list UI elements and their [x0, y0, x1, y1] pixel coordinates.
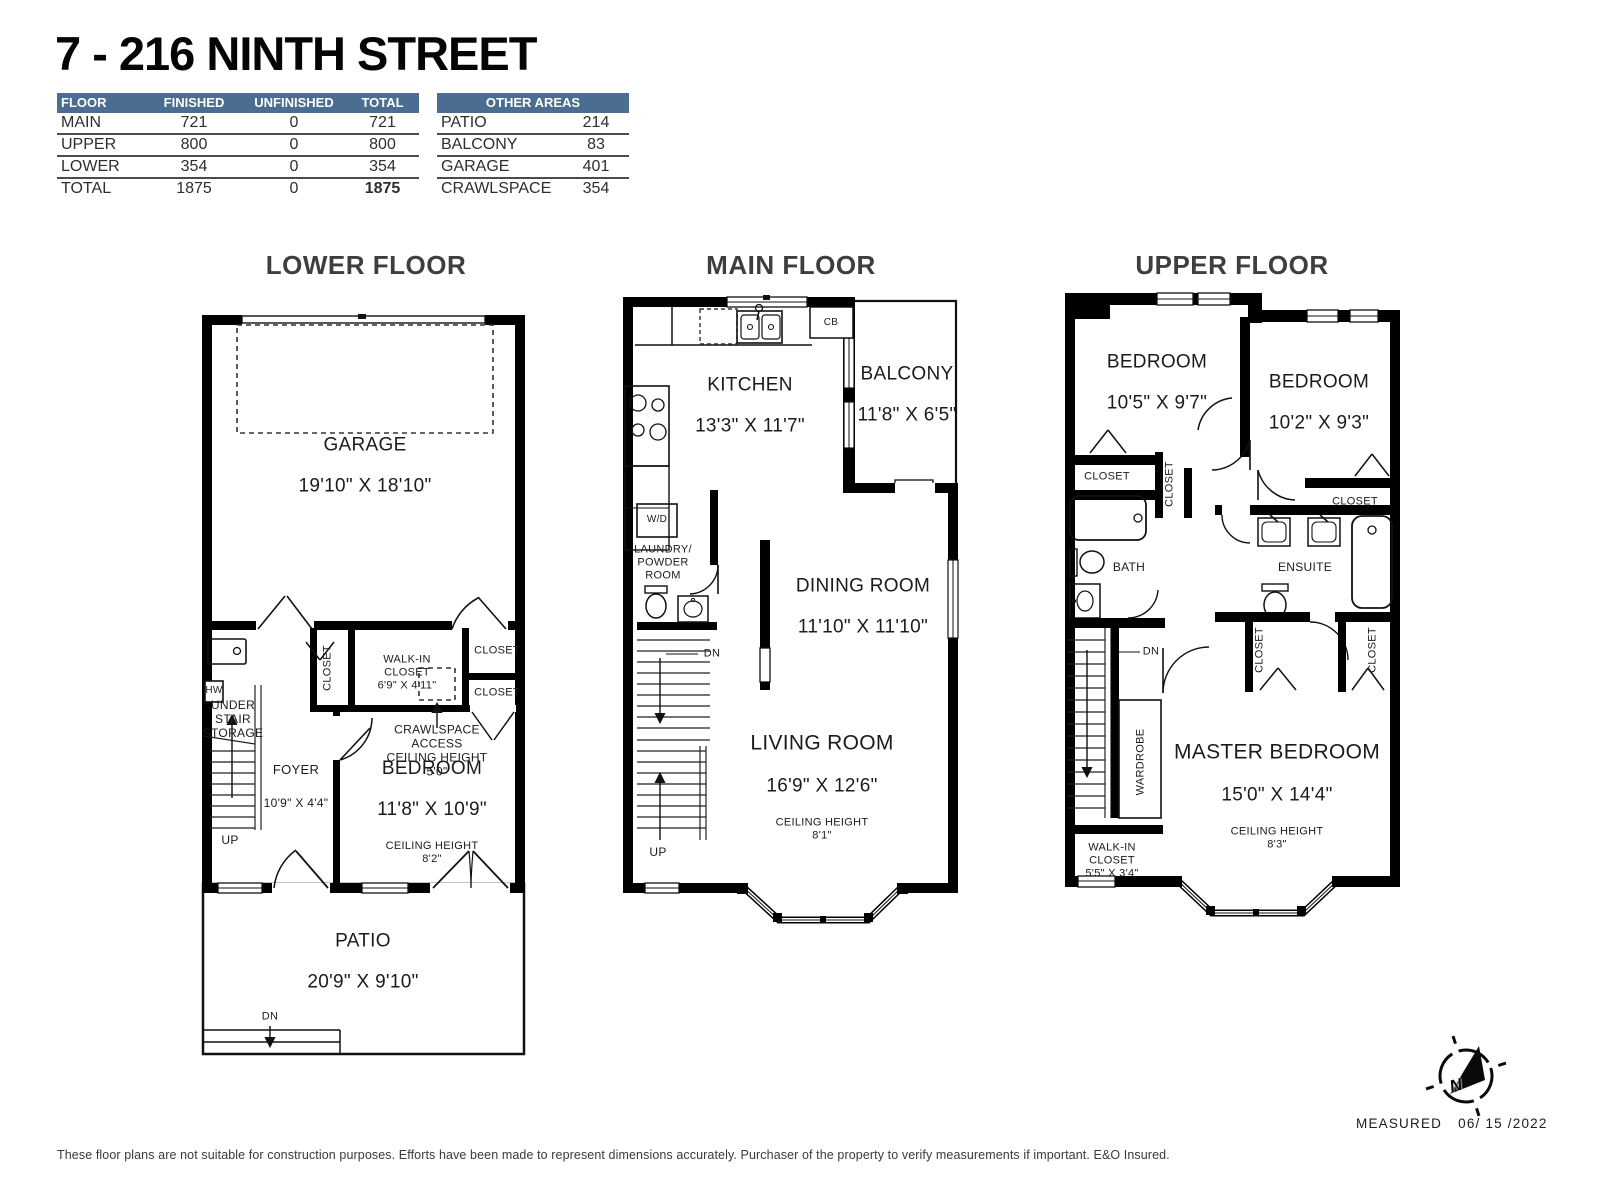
- label-closet: CLOSET: [474, 687, 520, 700]
- label-dn: DN: [1143, 646, 1160, 659]
- room-dims: 15'0" X 14'4": [1174, 784, 1380, 806]
- label-under-stair-storage: UNDER STAIR STORAGE: [203, 698, 264, 740]
- room-name: KITCHEN: [695, 374, 805, 396]
- room-label-master-bedroom: MASTER BEDROOM 15'0" X 14'4" CEILING HEI…: [1174, 722, 1380, 871]
- room-dims: 11'8" X 10'9": [377, 799, 487, 821]
- room-ceiling: CEILING HEIGHT 8'2": [377, 840, 487, 866]
- room-name: BEDROOM: [1107, 351, 1207, 373]
- powder-sink-icon: [678, 596, 708, 622]
- kitchen-sink-icon: [737, 305, 782, 344]
- room-dims: 16'9" X 12'6": [750, 775, 893, 797]
- label-ensuite: ENSUITE: [1278, 560, 1332, 574]
- label-closet: CLOSET: [1164, 461, 1177, 507]
- living-window: [645, 883, 679, 893]
- room-label-living: LIVING ROOM 16'9" X 12'6" CEILING HEIGHT…: [750, 713, 893, 862]
- master-door: [1163, 647, 1209, 693]
- room-dims: 13'3" X 11'7": [695, 415, 805, 437]
- room-dims: 11'10" X 11'10": [796, 616, 930, 638]
- label-closet: CLOSET: [1332, 496, 1378, 509]
- north-compass-icon: [1413, 1023, 1519, 1129]
- floorplan-page: 7 - 216 NINTH STREET FLOOR FINISHED UNFI…: [0, 0, 1600, 1200]
- room-name: LIVING ROOM: [750, 732, 893, 757]
- room-name: BEDROOM: [1269, 371, 1369, 393]
- label-dn: DN: [704, 648, 721, 661]
- patio-stairs: [203, 1030, 340, 1054]
- bath-door: [1128, 590, 1158, 618]
- label-dn: DN: [262, 1011, 279, 1024]
- room-label-bedroom1: BEDROOM 10'5" X 9'7": [1107, 332, 1207, 433]
- label-closet: CLOSET: [1254, 627, 1267, 673]
- label-closet: CLOSET: [1084, 471, 1130, 484]
- disclaimer-text: These floor plans are not suitable for c…: [57, 1148, 1170, 1162]
- label-cb: CB: [824, 317, 839, 329]
- room-name: BEDROOM: [377, 758, 487, 780]
- room-dims: 19'10" X 18'10": [298, 475, 431, 497]
- room-name: GARAGE: [298, 434, 431, 456]
- room-name: FOYER: [264, 762, 329, 777]
- measured-label: MEASURED: [1356, 1116, 1442, 1131]
- room-name: DINING ROOM: [796, 575, 930, 597]
- main-stairs: [637, 640, 710, 840]
- bathtub-icon: [1070, 496, 1146, 540]
- dining-window: [948, 560, 958, 638]
- room-ceiling: CEILING HEIGHT 8'3": [1174, 825, 1380, 851]
- room-label-balcony: BALCONY 11'8" X 6'5": [858, 344, 957, 445]
- label-wardrobe: WARDROBE: [1135, 729, 1148, 796]
- label-closet: CLOSET: [322, 645, 335, 691]
- label-closet: CLOSET: [474, 645, 520, 658]
- ensuite-tub-icon: [1352, 516, 1392, 608]
- room-label-foyer: FOYER 10'9" X 4'4": [264, 743, 329, 829]
- dishwasher-dashed: [700, 309, 737, 344]
- label-closet: CLOSET: [1367, 627, 1380, 673]
- room-label-bedroom: BEDROOM 11'8" X 10'9" CEILING HEIGHT 8'2…: [377, 739, 487, 885]
- label-hw: HW: [205, 685, 222, 697]
- kitchen-window: [727, 295, 807, 307]
- label-walkin-closet: WALK-IN CLOSET 5'5" X 3'4": [1085, 842, 1138, 881]
- lower-window-1: [218, 883, 262, 893]
- measured-value: 06/ 15 /2022: [1458, 1116, 1547, 1131]
- label-bath: BATH: [1113, 560, 1145, 574]
- ensuite-sink-icons: [1258, 515, 1340, 546]
- room-ceiling: CEILING HEIGHT 8'1": [750, 816, 893, 842]
- label-up: UP: [221, 833, 238, 847]
- room-name: PATIO: [307, 930, 418, 952]
- measured-date: MEASURED06/ 15 /2022: [1356, 1116, 1564, 1131]
- bath-toilet-icon: [1070, 549, 1104, 576]
- toilet-icon: [645, 586, 667, 618]
- label-walkin-closet: WALK-IN CLOSET 6'9" X 4'11": [378, 654, 437, 693]
- room-label-bedroom2: BEDROOM 10'2" X 9'3": [1269, 352, 1369, 453]
- label-wd: W/D: [647, 514, 667, 526]
- label-laundry-powder-room: LAUNDRY/ POWDER ROOM: [634, 544, 692, 583]
- stair-half-wall: [760, 540, 770, 690]
- room-label-dining: DINING ROOM 11'10" X 11'10": [796, 556, 930, 657]
- room-dims: 11'8" X 6'5": [858, 404, 957, 426]
- room-label-garage: GARAGE 19'10" X 18'10": [298, 415, 431, 516]
- room-label-patio: PATIO 20'9" X 9'10": [307, 911, 418, 1012]
- label-up: UP: [649, 845, 666, 859]
- room-dims: 10'2" X 9'3": [1269, 412, 1369, 434]
- room-name: MASTER BEDROOM: [1174, 741, 1380, 766]
- room-dims: 10'5" X 9'7": [1107, 392, 1207, 414]
- room-dims: 20'9" X 9'10": [307, 971, 418, 993]
- room-label-kitchen: KITCHEN 13'3" X 11'7": [695, 355, 805, 456]
- room-name: BALCONY: [858, 363, 957, 385]
- room-dims: 10'9" X 4'4": [264, 796, 329, 810]
- bedroom1-windows: [1157, 293, 1230, 305]
